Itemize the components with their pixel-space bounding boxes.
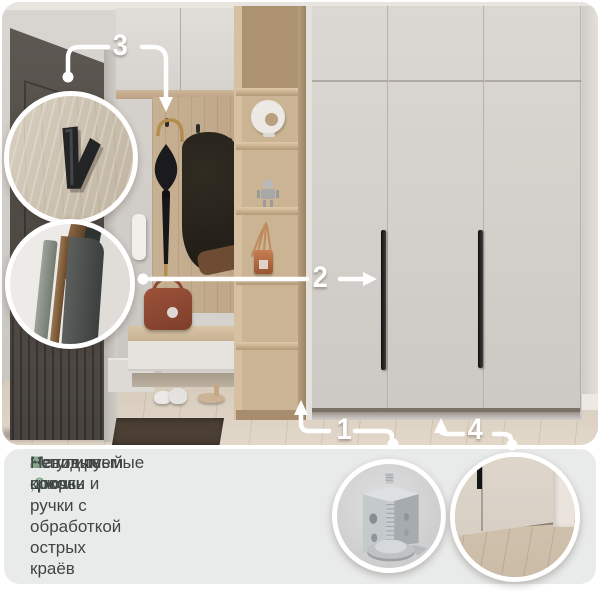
- wardrobe-door-seam: [387, 6, 389, 412]
- handbag-charm: [167, 307, 178, 318]
- plinth-handle-end: [477, 467, 482, 489]
- wall-hook-icon: [23, 108, 119, 208]
- shelf-top-cell: [242, 6, 298, 88]
- heel-shoe: [214, 384, 219, 396]
- shelf-board: [236, 88, 304, 96]
- marker-3: 3: [113, 29, 127, 63]
- marker-2: 2: [313, 261, 327, 295]
- robot-figurine: [256, 178, 280, 208]
- bench-drawer: [128, 341, 248, 371]
- sneaker: [169, 388, 187, 404]
- right-wall: [582, 6, 598, 406]
- diffuser-label: [259, 260, 268, 269]
- shelf-column-base: [236, 410, 304, 420]
- wardrobe: [312, 6, 582, 420]
- wardrobe-handle: [478, 230, 483, 368]
- wardrobe-handle: [381, 230, 386, 370]
- vase-foot: [263, 133, 275, 137]
- marker-4: 4: [468, 413, 482, 447]
- product-infographic: 1.Регулируемые опоры 2 ,3.Матовые крючки…: [0, 0, 600, 592]
- upper-cabinet: [116, 8, 238, 98]
- shelf-column-frame: [298, 6, 306, 420]
- plinth-side-wall: [553, 457, 575, 527]
- marker-1: 1: [337, 413, 351, 447]
- panel-edge-detail-callout: [5, 219, 135, 349]
- donut-vase: [251, 100, 285, 134]
- cabinet-seam: [180, 8, 181, 90]
- wardrobe-door-seam: [483, 6, 485, 412]
- doormat-rug: [112, 418, 224, 445]
- shelf-board: [236, 342, 304, 350]
- plinth-detail-callout: [450, 452, 580, 582]
- plinth-shadow: [312, 412, 580, 419]
- shelf-board: [236, 142, 304, 150]
- edge-dark-panel: [61, 237, 105, 349]
- hook-detail-callout: [4, 91, 138, 225]
- shelf-board: [236, 207, 304, 215]
- heel-shoe: [198, 393, 225, 403]
- adjustable-foot-callout: [332, 459, 446, 573]
- shelf-board: [236, 277, 304, 285]
- bench-underside: [132, 373, 244, 387]
- feature-text: Невидимый цоколь: [30, 452, 123, 495]
- right-baseboard: [582, 394, 598, 410]
- adjustable-foot-icon: [345, 468, 433, 564]
- wardrobe-top-seam: [312, 80, 582, 82]
- vase-hole: [265, 113, 278, 126]
